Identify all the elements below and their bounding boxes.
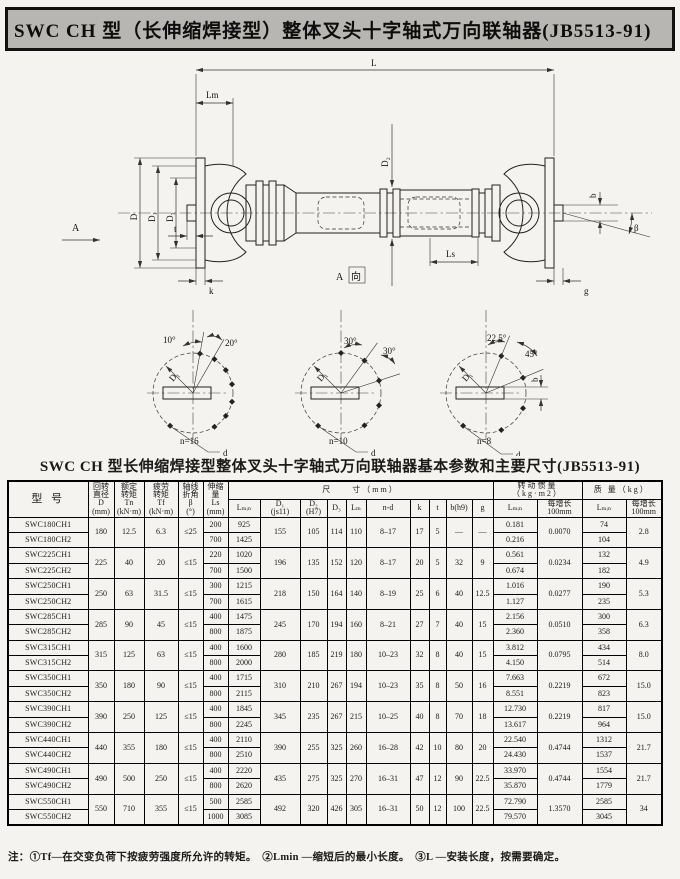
- g-cell: 15: [472, 640, 493, 671]
- tn-cell: 180: [114, 671, 144, 702]
- dim-label-L: L: [371, 58, 377, 68]
- d-cell: 225: [88, 548, 114, 579]
- tn-cell: 250: [114, 702, 144, 733]
- lmin-cell: 1600: [228, 640, 260, 655]
- dim-label-D2: D₂: [380, 157, 390, 167]
- mass-per-cell: 4.9: [626, 548, 662, 579]
- header-model: 型 号: [8, 481, 88, 517]
- d2-cell: 275: [300, 763, 327, 794]
- header-d3: D₃: [327, 499, 346, 517]
- k-cell: 35: [410, 671, 429, 702]
- mass-cell: 104: [582, 532, 626, 547]
- t-cell: 5: [429, 517, 446, 548]
- ls-cell: 400: [203, 733, 228, 748]
- d1-cell: 345: [260, 702, 300, 733]
- header-d1: D₁ (js11): [260, 499, 300, 517]
- mass-cell: 190: [582, 579, 626, 594]
- tn-cell: 63: [114, 579, 144, 610]
- ls-cell: 400: [203, 609, 228, 624]
- model-cell: SWC350CH1: [8, 671, 88, 686]
- tf-cell: 45: [144, 609, 178, 640]
- inertia-per-cell: 1.3570: [537, 794, 582, 825]
- inertia-cell: 0.561: [493, 548, 537, 563]
- inertia-cell: 2.156: [493, 609, 537, 624]
- ls-cell: 400: [203, 763, 228, 778]
- g-cell: 16: [472, 671, 493, 702]
- table-row: SWC285CH12859045≤1540014752451701941608–…: [8, 609, 662, 624]
- t-cell: 5: [429, 548, 446, 579]
- d1-cell: 155: [260, 517, 300, 548]
- d2-cell: 320: [300, 794, 327, 825]
- k-cell: 50: [410, 794, 429, 825]
- tf-cell: 63: [144, 640, 178, 671]
- mass-cell: 358: [582, 625, 626, 640]
- bolt-pattern-view-n10: 30° 30° D₁ d n=10: [295, 310, 400, 456]
- tn-cell: 355: [114, 733, 144, 764]
- model-cell: SWC390CH2: [8, 717, 88, 732]
- model-cell: SWC315CH2: [8, 656, 88, 671]
- b-cell: 40: [446, 579, 472, 610]
- mass-cell: 300: [582, 609, 626, 624]
- nd-cell: 8–19: [366, 579, 410, 610]
- model-cell: SWC490CH1: [8, 763, 88, 778]
- lmin-cell: 1215: [228, 579, 260, 594]
- inertia-cell: 24.430: [493, 748, 537, 763]
- header-d2: D₂ (H7): [300, 499, 327, 517]
- lmin-cell: 1875: [228, 625, 260, 640]
- ls-cell: 300: [203, 579, 228, 594]
- angle-label: 22.5°: [487, 333, 507, 343]
- hole-count-label: n=16: [180, 436, 199, 446]
- inertia-cell: 7.663: [493, 671, 537, 686]
- model-cell: SWC250CH1: [8, 579, 88, 594]
- d1-cell: 310: [260, 671, 300, 702]
- table-row: SWC315CH131512563≤1540016002801852191801…: [8, 640, 662, 655]
- inertia-per-cell: 0.0795: [537, 640, 582, 671]
- model-cell: SWC440CH2: [8, 748, 88, 763]
- header-mass-group: 质 量（kg）: [582, 481, 662, 499]
- d3-cell: 114: [327, 517, 346, 548]
- lm-cell: 180: [346, 640, 366, 671]
- ls-cell: 400: [203, 702, 228, 717]
- ls-cell: 800: [203, 717, 228, 732]
- model-cell: SWC180CH1: [8, 517, 88, 532]
- bolt-circle-label: D₁: [167, 369, 181, 383]
- inertia-per-cell: 0.0234: [537, 548, 582, 579]
- spec-table-body: SWC180CH118012.56.3≤25200925155105114110…: [8, 517, 662, 825]
- mass-cell: 823: [582, 686, 626, 701]
- k-cell: 47: [410, 763, 429, 794]
- hole-count-label: n=10: [329, 436, 348, 446]
- bolt-pattern-view-n16: 10° 20° D₁ d n=16: [147, 310, 238, 456]
- inertia-cell: 0.181: [493, 517, 537, 532]
- nd-cell: 10–23: [366, 640, 410, 671]
- inertia-cell: 8.551: [493, 686, 537, 701]
- model-cell: SWC350CH2: [8, 686, 88, 701]
- header-ls: 伸缩 量 Ls (mm): [203, 481, 228, 517]
- inertia-cell: 79.570: [493, 809, 537, 825]
- beta-cell: ≤25: [178, 517, 203, 548]
- inertia-cell: 72.790: [493, 794, 537, 809]
- d-cell: 180: [88, 517, 114, 548]
- inertia-per-cell: 0.0070: [537, 517, 582, 548]
- lmin-cell: 1425: [228, 532, 260, 547]
- lmin-cell: 2220: [228, 763, 260, 778]
- bolt-pattern-view-n8: 22.5° 45° D₁ d n=8 b: [440, 310, 548, 456]
- nd-cell: 10–23: [366, 671, 410, 702]
- lmin-cell: 1845: [228, 702, 260, 717]
- ls-cell: 400: [203, 640, 228, 655]
- inertia-per-cell: 0.2219: [537, 702, 582, 733]
- lmin-cell: 2245: [228, 717, 260, 732]
- dim-label-D1: D₁: [147, 212, 157, 222]
- lmin-cell: 2585: [228, 794, 260, 809]
- k-cell: 20: [410, 548, 429, 579]
- d3-cell: 325: [327, 733, 346, 764]
- b-cell: 70: [446, 702, 472, 733]
- d2-cell: 135: [300, 548, 327, 579]
- g-cell: —: [472, 517, 493, 548]
- lmin-cell: 1615: [228, 594, 260, 609]
- nd-cell: 8–21: [366, 609, 410, 640]
- mass-cell: 3045: [582, 809, 626, 825]
- page-title: SWC CH 型（长伸缩焊接型）整体叉头十字轴式万向联轴器(JB5513-91): [14, 16, 651, 43]
- header-nd: n-d: [366, 499, 410, 517]
- mass-cell: 74: [582, 517, 626, 532]
- table-row: SWC250CH12506331.5≤153001215218150164140…: [8, 579, 662, 594]
- hole-count-label: n=8: [477, 436, 492, 446]
- d2-cell: 105: [300, 517, 327, 548]
- coupling-side-view: L Lm D D₁ D₃ D₂ Ls: [62, 58, 652, 296]
- nd-cell: 10–25: [366, 702, 410, 733]
- tf-cell: 20: [144, 548, 178, 579]
- inertia-cell: 1.127: [493, 594, 537, 609]
- model-cell: SWC550CH2: [8, 809, 88, 825]
- inertia-per-cell: 0.0277: [537, 579, 582, 610]
- mass-cell: 964: [582, 717, 626, 732]
- model-cell: SWC225CH2: [8, 563, 88, 578]
- nd-cell: 8–17: [366, 517, 410, 548]
- k-cell: 25: [410, 579, 429, 610]
- g-cell: 22.5: [472, 794, 493, 825]
- nd-cell: 16–31: [366, 763, 410, 794]
- mass-cell: 2585: [582, 794, 626, 809]
- header-beta: 轴线 折角 β (°): [178, 481, 203, 517]
- tn-cell: 125: [114, 640, 144, 671]
- d3-cell: 325: [327, 763, 346, 794]
- lm-cell: 215: [346, 702, 366, 733]
- technical-drawing: L Lm D D₁ D₃ D₂ Ls: [0, 54, 680, 456]
- d3-cell: 267: [327, 671, 346, 702]
- d3-cell: 219: [327, 640, 346, 671]
- dim-label-t: t: [174, 224, 177, 234]
- model-cell: SWC315CH1: [8, 640, 88, 655]
- d1-cell: 435: [260, 763, 300, 794]
- g-cell: 9: [472, 548, 493, 579]
- lm-cell: 140: [346, 579, 366, 610]
- dim-label-D: D: [129, 213, 139, 220]
- d2-cell: 170: [300, 609, 327, 640]
- lm-cell: 110: [346, 517, 366, 548]
- angle-label: 30°: [344, 336, 357, 346]
- header-inertia-lmin: Lₘᵢₙ: [493, 499, 537, 517]
- g-cell: 18: [472, 702, 493, 733]
- inertia-cell: 33.970: [493, 763, 537, 778]
- b-cell: 40: [446, 640, 472, 671]
- ls-cell: 800: [203, 748, 228, 763]
- model-cell: SWC490CH2: [8, 779, 88, 794]
- table-row: SWC180CH118012.56.3≤25200925155105114110…: [8, 517, 662, 532]
- g-cell: 12.5: [472, 579, 493, 610]
- b-cell: —: [446, 517, 472, 548]
- t-cell: 6: [429, 579, 446, 610]
- ls-cell: 400: [203, 671, 228, 686]
- tn-cell: 500: [114, 763, 144, 794]
- nd-cell: 8–17: [366, 548, 410, 579]
- tn-cell: 12.5: [114, 517, 144, 548]
- dim-label-Ls: Ls: [446, 249, 455, 259]
- angle-label: 30°: [383, 346, 396, 356]
- mass-cell: 1779: [582, 779, 626, 794]
- header-d: 回转 直径 D (mm): [88, 481, 114, 517]
- lm-cell: 260: [346, 733, 366, 764]
- tf-cell: 250: [144, 763, 178, 794]
- spec-table-header: 型 号 回转 直径 D (mm) 额定 转矩 Tn (kN·m) 疲劳 转矩 T…: [8, 481, 662, 517]
- k-cell: 40: [410, 702, 429, 733]
- model-cell: SWC225CH1: [8, 548, 88, 563]
- model-cell: SWC285CH1: [8, 609, 88, 624]
- header-tn: 额定 转矩 Tn (kN·m): [114, 481, 144, 517]
- lmin-cell: 2115: [228, 686, 260, 701]
- header-inertia-per: 每增长 100mm: [537, 499, 582, 517]
- mass-cell: 672: [582, 671, 626, 686]
- table-row: SWC390CH1390250125≤154001845345235267215…: [8, 702, 662, 717]
- k-cell: 32: [410, 640, 429, 671]
- tf-cell: 180: [144, 733, 178, 764]
- tf-cell: 31.5: [144, 579, 178, 610]
- model-cell: SWC180CH2: [8, 532, 88, 547]
- mass-per-cell: 15.0: [626, 702, 662, 733]
- mass-per-cell: 8.0: [626, 640, 662, 671]
- view-a-caption-xiang: 向: [351, 270, 361, 283]
- lmin-cell: 925: [228, 517, 260, 532]
- angle-label: 20°: [225, 338, 238, 348]
- bolt-circle-label: D₁: [460, 369, 474, 383]
- table-row: SWC490CH1490500250≤154002220435275325270…: [8, 763, 662, 778]
- tf-cell: 355: [144, 794, 178, 825]
- d1-cell: 196: [260, 548, 300, 579]
- mass-cell: 434: [582, 640, 626, 655]
- angle-label: 45°: [525, 349, 538, 359]
- ls-cell: 200: [203, 517, 228, 532]
- header-size-group: 尺 寸（mm）: [228, 481, 493, 499]
- dim-label-Lm: Lm: [206, 90, 219, 100]
- tf-cell: 6.3: [144, 517, 178, 548]
- mass-per-cell: 21.7: [626, 733, 662, 764]
- beta-cell: ≤15: [178, 671, 203, 702]
- t-cell: 12: [429, 763, 446, 794]
- t-cell: 7: [429, 609, 446, 640]
- tf-cell: 125: [144, 702, 178, 733]
- header-k: k: [410, 499, 429, 517]
- model-cell: SWC440CH1: [8, 733, 88, 748]
- inertia-cell: 0.216: [493, 532, 537, 547]
- beta-cell: ≤15: [178, 733, 203, 764]
- t-cell: 8: [429, 702, 446, 733]
- lmin-cell: 3085: [228, 809, 260, 825]
- view-a-arrow-label: A: [72, 223, 80, 234]
- inertia-cell: 12.730: [493, 702, 537, 717]
- lm-cell: 160: [346, 609, 366, 640]
- inertia-cell: 4.150: [493, 656, 537, 671]
- d-cell: 350: [88, 671, 114, 702]
- g-cell: 22.5: [472, 763, 493, 794]
- ls-cell: 800: [203, 656, 228, 671]
- d3-cell: 267: [327, 702, 346, 733]
- header-g: g: [472, 499, 493, 517]
- mass-per-cell: 5.3: [626, 579, 662, 610]
- dim-label-g: g: [584, 286, 589, 296]
- header-mass-per: 每增长 100mm: [626, 499, 662, 517]
- table-row: SWC225CH12254020≤1522010201961351521208–…: [8, 548, 662, 563]
- beta-cell: ≤15: [178, 702, 203, 733]
- mass-cell: 1537: [582, 748, 626, 763]
- d2-cell: 185: [300, 640, 327, 671]
- d1-cell: 390: [260, 733, 300, 764]
- inertia-per-cell: 0.2219: [537, 671, 582, 702]
- beta-cell: ≤15: [178, 579, 203, 610]
- view-a-caption-a: A: [336, 272, 344, 283]
- d3-cell: 426: [327, 794, 346, 825]
- nd-cell: 16–31: [366, 794, 410, 825]
- b-cell: 40: [446, 609, 472, 640]
- ls-cell: 700: [203, 532, 228, 547]
- mass-cell: 1554: [582, 763, 626, 778]
- b-cell: 50: [446, 671, 472, 702]
- mass-cell: 817: [582, 702, 626, 717]
- t-cell: 10: [429, 733, 446, 764]
- table-row: SWC350CH135018090≤1540017153102102671941…: [8, 671, 662, 686]
- dim-label-b: b: [588, 193, 598, 198]
- d3-cell: 164: [327, 579, 346, 610]
- tf-cell: 90: [144, 671, 178, 702]
- lmin-cell: 2000: [228, 656, 260, 671]
- mass-cell: 1312: [582, 733, 626, 748]
- b-cell: 32: [446, 548, 472, 579]
- ls-cell: 800: [203, 625, 228, 640]
- lm-cell: 120: [346, 548, 366, 579]
- d-cell: 285: [88, 609, 114, 640]
- inertia-cell: 3.812: [493, 640, 537, 655]
- mass-per-cell: 2.8: [626, 517, 662, 548]
- header-lm: Lₘ: [346, 499, 366, 517]
- model-cell: SWC550CH1: [8, 794, 88, 809]
- ls-cell: 800: [203, 686, 228, 701]
- ls-cell: 220: [203, 548, 228, 563]
- model-cell: SWC250CH2: [8, 594, 88, 609]
- d-cell: 440: [88, 733, 114, 764]
- dim-label-D3: D₃: [165, 212, 175, 222]
- b-cell: 100: [446, 794, 472, 825]
- b-cell: 90: [446, 763, 472, 794]
- lm-cell: 305: [346, 794, 366, 825]
- d1-cell: 245: [260, 609, 300, 640]
- k-cell: 27: [410, 609, 429, 640]
- inertia-per-cell: 0.0510: [537, 609, 582, 640]
- ls-cell: 800: [203, 779, 228, 794]
- ls-cell: 700: [203, 563, 228, 578]
- page-title-bar: SWC CH 型（长伸缩焊接型）整体叉头十字轴式万向联轴器(JB5513-91): [5, 7, 675, 51]
- footnote: 注：①Tf—在交变负荷下按疲劳强度所允许的转矩。 ②Lmin —缩短后的最小长度…: [8, 849, 674, 864]
- inertia-per-cell: 0.4744: [537, 763, 582, 794]
- d-cell: 250: [88, 579, 114, 610]
- lmin-cell: 1715: [228, 671, 260, 686]
- ls-cell: 700: [203, 594, 228, 609]
- inertia-cell: 35.870: [493, 779, 537, 794]
- beta-cell: ≤15: [178, 763, 203, 794]
- beta-cell: ≤15: [178, 640, 203, 671]
- d2-cell: 210: [300, 671, 327, 702]
- header-t: t: [429, 499, 446, 517]
- t-cell: 8: [429, 671, 446, 702]
- inertia-cell: 1.016: [493, 579, 537, 594]
- ls-cell: 1000: [203, 809, 228, 825]
- d-cell: 550: [88, 794, 114, 825]
- d1-cell: 492: [260, 794, 300, 825]
- lmin-cell: 1500: [228, 563, 260, 578]
- lm-cell: 194: [346, 671, 366, 702]
- header-inertia-group: 转动惯量（kg·m2）: [493, 481, 582, 499]
- model-cell: SWC285CH2: [8, 625, 88, 640]
- header-b: b(h9): [446, 499, 472, 517]
- g-cell: 15: [472, 609, 493, 640]
- d2-cell: 255: [300, 733, 327, 764]
- d-cell: 390: [88, 702, 114, 733]
- lmin-cell: 2510: [228, 748, 260, 763]
- dim-label-beta: β: [634, 223, 639, 233]
- mass-per-cell: 21.7: [626, 763, 662, 794]
- mass-cell: 235: [582, 594, 626, 609]
- lmin-cell: 2620: [228, 779, 260, 794]
- t-cell: 8: [429, 640, 446, 671]
- table-row: SWC440CH1440355180≤154002110390255325260…: [8, 733, 662, 748]
- mass-per-cell: 6.3: [626, 609, 662, 640]
- d-cell: 490: [88, 763, 114, 794]
- d3-cell: 194: [327, 609, 346, 640]
- angle-label: 10°: [163, 335, 176, 345]
- header-tf: 疲劳 转矩 Tf (kN·m): [144, 481, 178, 517]
- mass-cell: 182: [582, 563, 626, 578]
- d1-cell: 280: [260, 640, 300, 671]
- table-title: SWC CH 型长伸缩焊接型整体叉头十字轴式万向联轴器基本参数和主要尺寸(JB5…: [0, 455, 680, 476]
- mass-cell: 514: [582, 656, 626, 671]
- header-lmin: Lₘᵢₙ: [228, 499, 260, 517]
- lm-cell: 270: [346, 763, 366, 794]
- d1-cell: 218: [260, 579, 300, 610]
- table-row: SWC550CH1550710355≤155002585492320426305…: [8, 794, 662, 809]
- model-cell: SWC390CH1: [8, 702, 88, 717]
- d2-cell: 235: [300, 702, 327, 733]
- dim-label-b-detail: b: [530, 377, 540, 382]
- d-cell: 315: [88, 640, 114, 671]
- lmin-cell: 2110: [228, 733, 260, 748]
- d3-cell: 152: [327, 548, 346, 579]
- tn-cell: 90: [114, 609, 144, 640]
- inertia-cell: 22.540: [493, 733, 537, 748]
- beta-cell: ≤15: [178, 609, 203, 640]
- t-cell: 12: [429, 794, 446, 825]
- catalog-page: SWC CH 型（长伸缩焊接型）整体叉头十字轴式万向联轴器(JB5513-91): [0, 0, 680, 879]
